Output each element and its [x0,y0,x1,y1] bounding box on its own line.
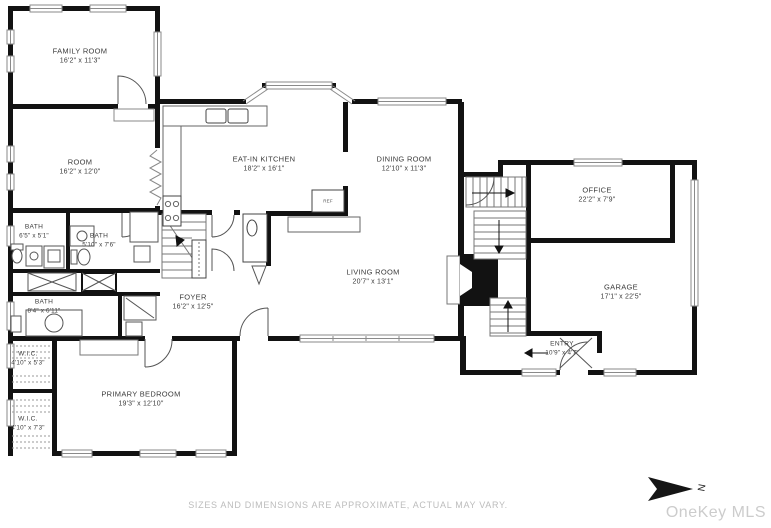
room-label-room: ROOM16'2" x 12'0" [60,158,101,177]
wall-break-zigzag [150,148,162,206]
room-label-dining-room: DINING ROOM12'10" x 11'3" [377,155,432,174]
floorplan-drawing [0,0,771,528]
room-label-office: OFFICE22'2" x 7'9" [579,186,616,205]
floorplan-page: FAMILY ROOM16'2" x 11'3" ROOM16'2" x 12'… [0,0,771,528]
room-label-primary-bedroom: PRIMARY BEDROOM19'3" x 12'10" [101,390,180,409]
compass-north-arrow [648,477,693,501]
room-label-wic-lower: W.I.C.4'10" x 7'3" [11,416,44,433]
room-label-living-room: LIVING ROOM20'7" x 13'1" [346,268,399,287]
room-label-garage: GARAGE17'1" x 22'5" [601,283,642,302]
watermark-text: OneKey MLS [666,504,766,522]
room-label-family-room: FAMILY ROOM16'2" x 11'3" [53,47,108,66]
room-label-entry: ENTRY10'9" x 4'7" [545,341,578,358]
fridge-label: REF [323,199,333,204]
room-label-eat-in-kitchen: EAT-IN KITCHEN18'2" x 16'1" [233,155,296,174]
room-label-foyer: FOYER16'2" x 12'5" [173,293,214,312]
room-label-wic-upper: W.I.C.4'10" x 5'3" [11,351,44,368]
bedroom-furniture [80,340,138,355]
room-label-bath-upper-left: BATH6'5" x 5'1" [19,224,49,241]
disclaimer-text: SIZES AND DIMENSIONS ARE APPROXIMATE, AC… [128,500,568,510]
room-label-bath-upper-right: BATH5'10" x 7'6" [82,233,115,250]
room-label-bath-lower: BATH8'4" x 6'11" [28,299,61,316]
